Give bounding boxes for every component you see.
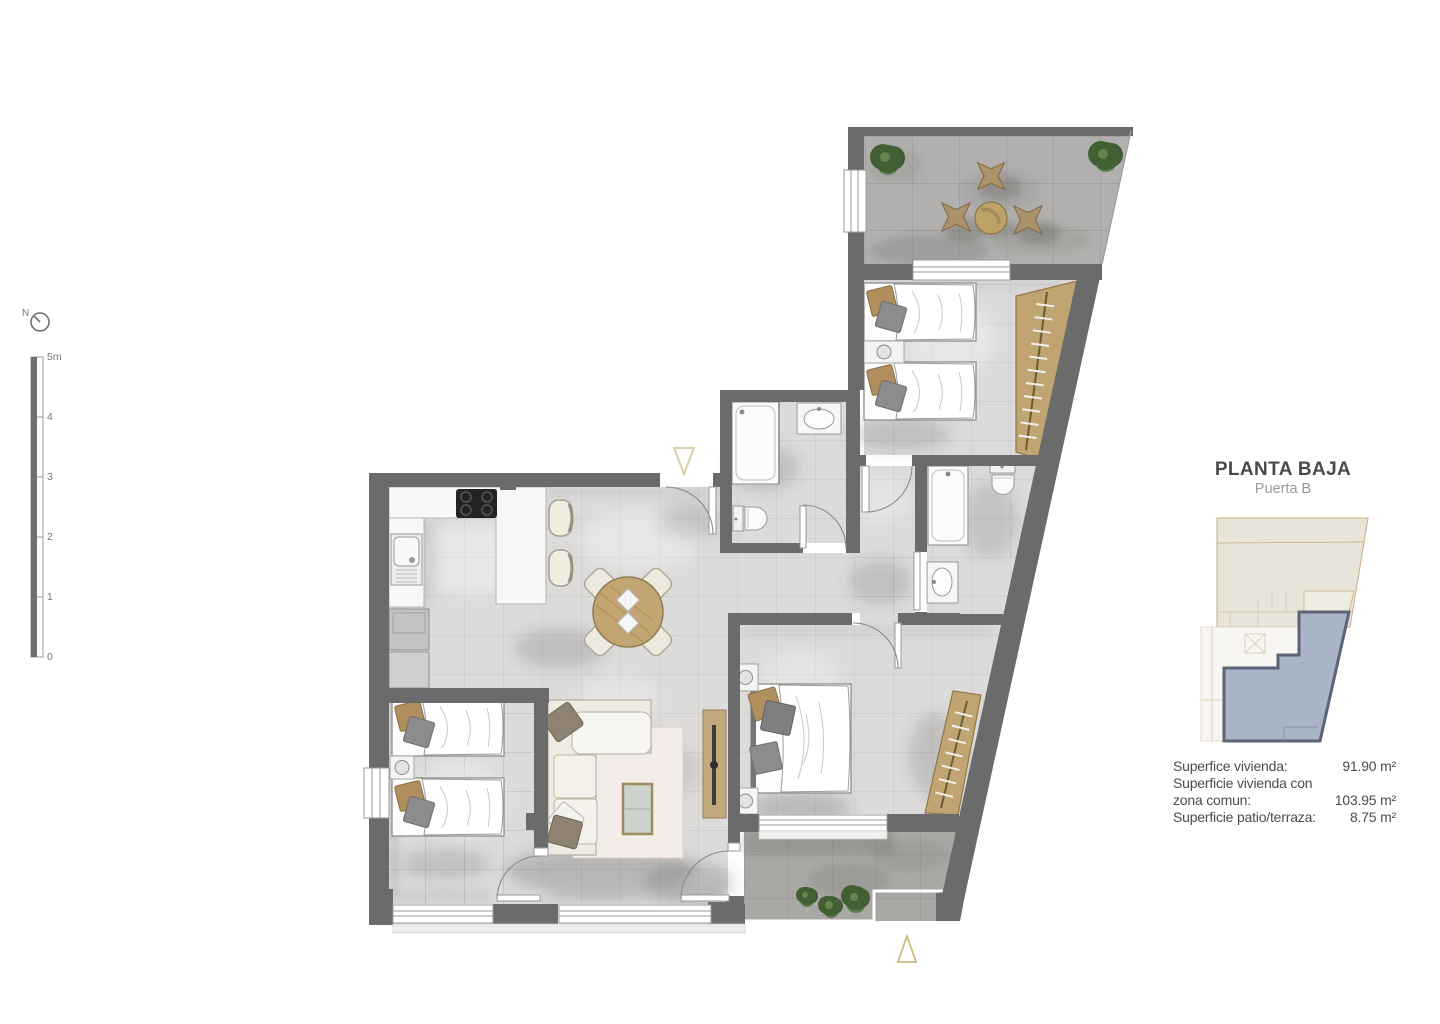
- svg-text:N: N: [22, 308, 29, 319]
- svg-text:0: 0: [47, 651, 53, 663]
- svg-text:2: 2: [47, 531, 53, 543]
- svg-text:1: 1: [47, 591, 53, 603]
- svg-text:91.90 m²: 91.90 m²: [1342, 758, 1396, 774]
- svg-text:Superficie vivienda con: Superficie vivienda con: [1173, 775, 1312, 791]
- svg-text:3: 3: [47, 471, 53, 483]
- svg-text:103.95 m²: 103.95 m²: [1335, 792, 1397, 808]
- svg-text:8.75 m²: 8.75 m²: [1350, 809, 1397, 825]
- svg-text:PLANTA BAJA: PLANTA BAJA: [1215, 459, 1351, 480]
- svg-text:5m: 5m: [47, 351, 62, 363]
- svg-text:zona comun:: zona comun:: [1173, 792, 1251, 808]
- svg-text:4: 4: [47, 411, 53, 423]
- svg-text:Puerta B: Puerta B: [1255, 481, 1311, 497]
- svg-text:Superfice vivienda:: Superfice vivienda:: [1173, 758, 1288, 774]
- svg-text:Superficie patio/terraza:: Superficie patio/terraza:: [1173, 809, 1316, 825]
